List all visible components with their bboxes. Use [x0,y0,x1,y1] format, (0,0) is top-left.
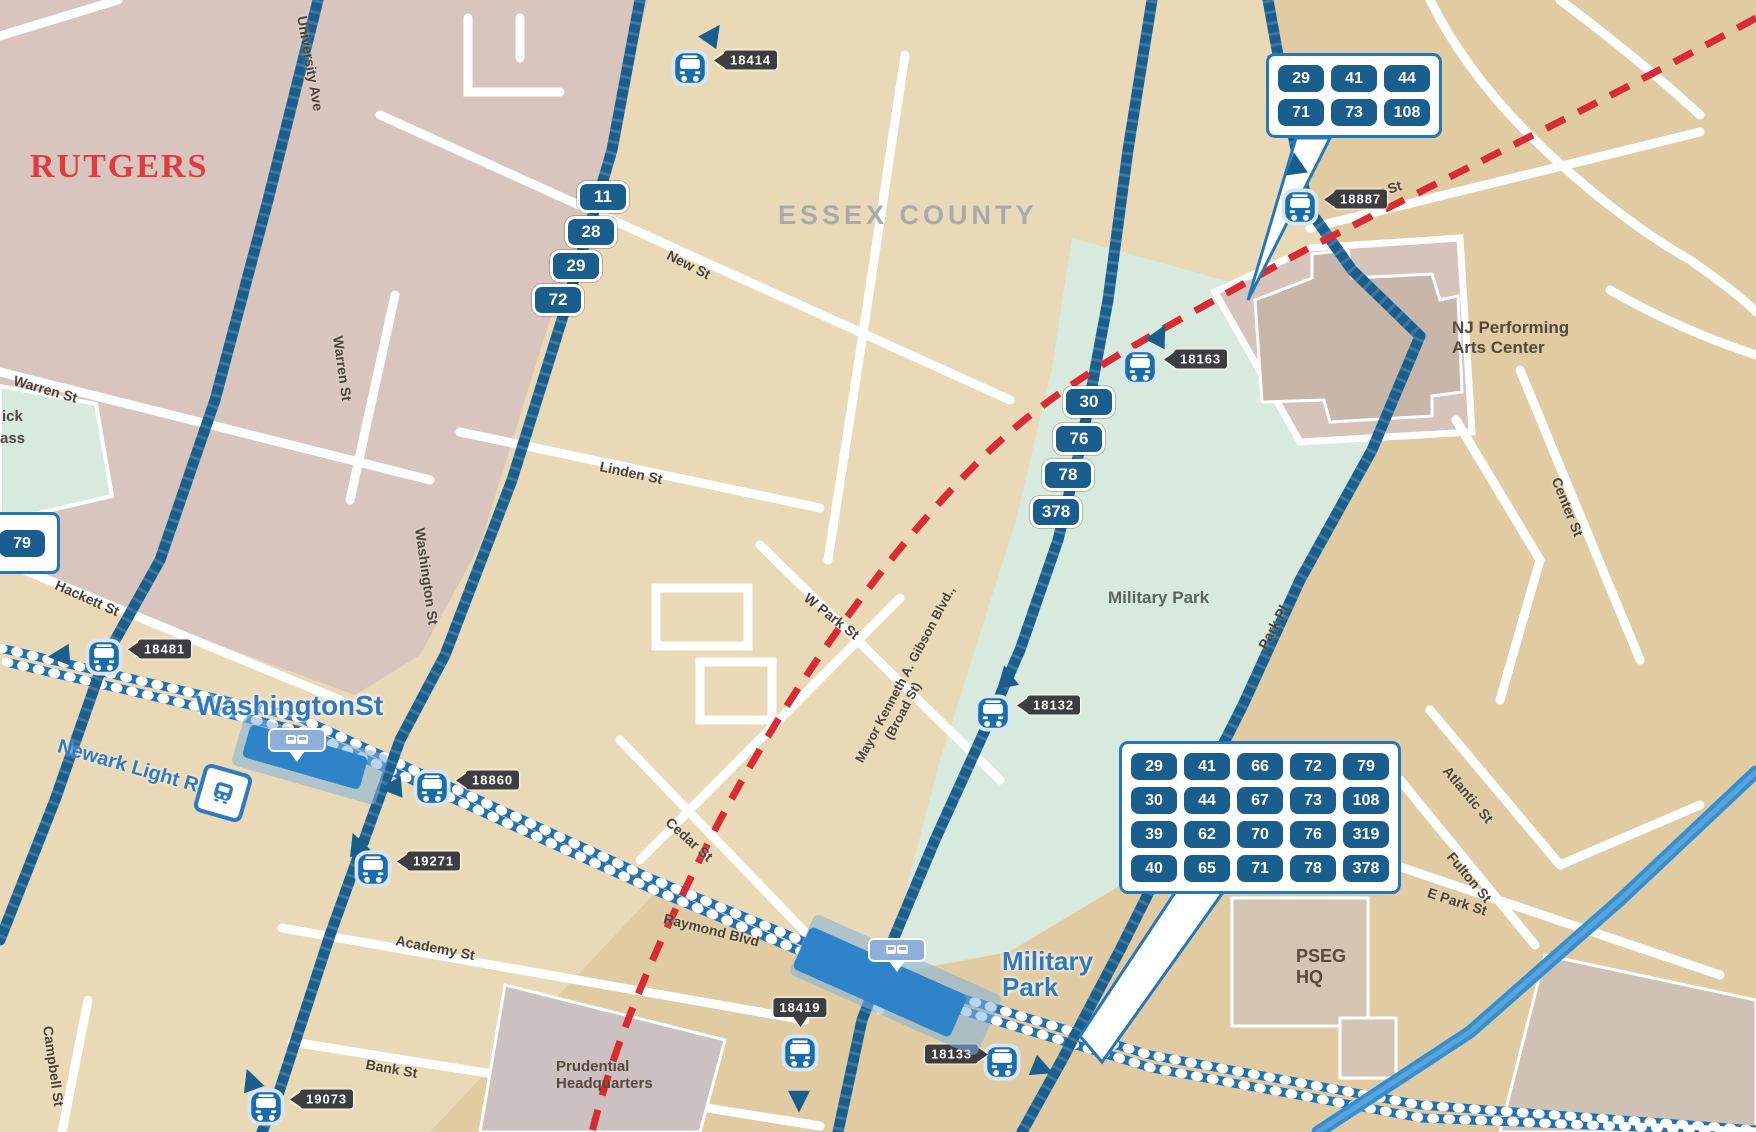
rutgers-university-label: RUTGERS [30,148,208,186]
map-canvas[interactable]: RUTGERS ESSEX COUNTY Mayor Kenneth A. Gi… [0,0,1756,1132]
edge-route-callout: 79 [0,512,60,574]
route-badge-79: 79 [0,530,45,557]
essex-county-label: ESSEX COUNTY [778,200,1038,231]
map-base-geometry [0,0,1756,1132]
